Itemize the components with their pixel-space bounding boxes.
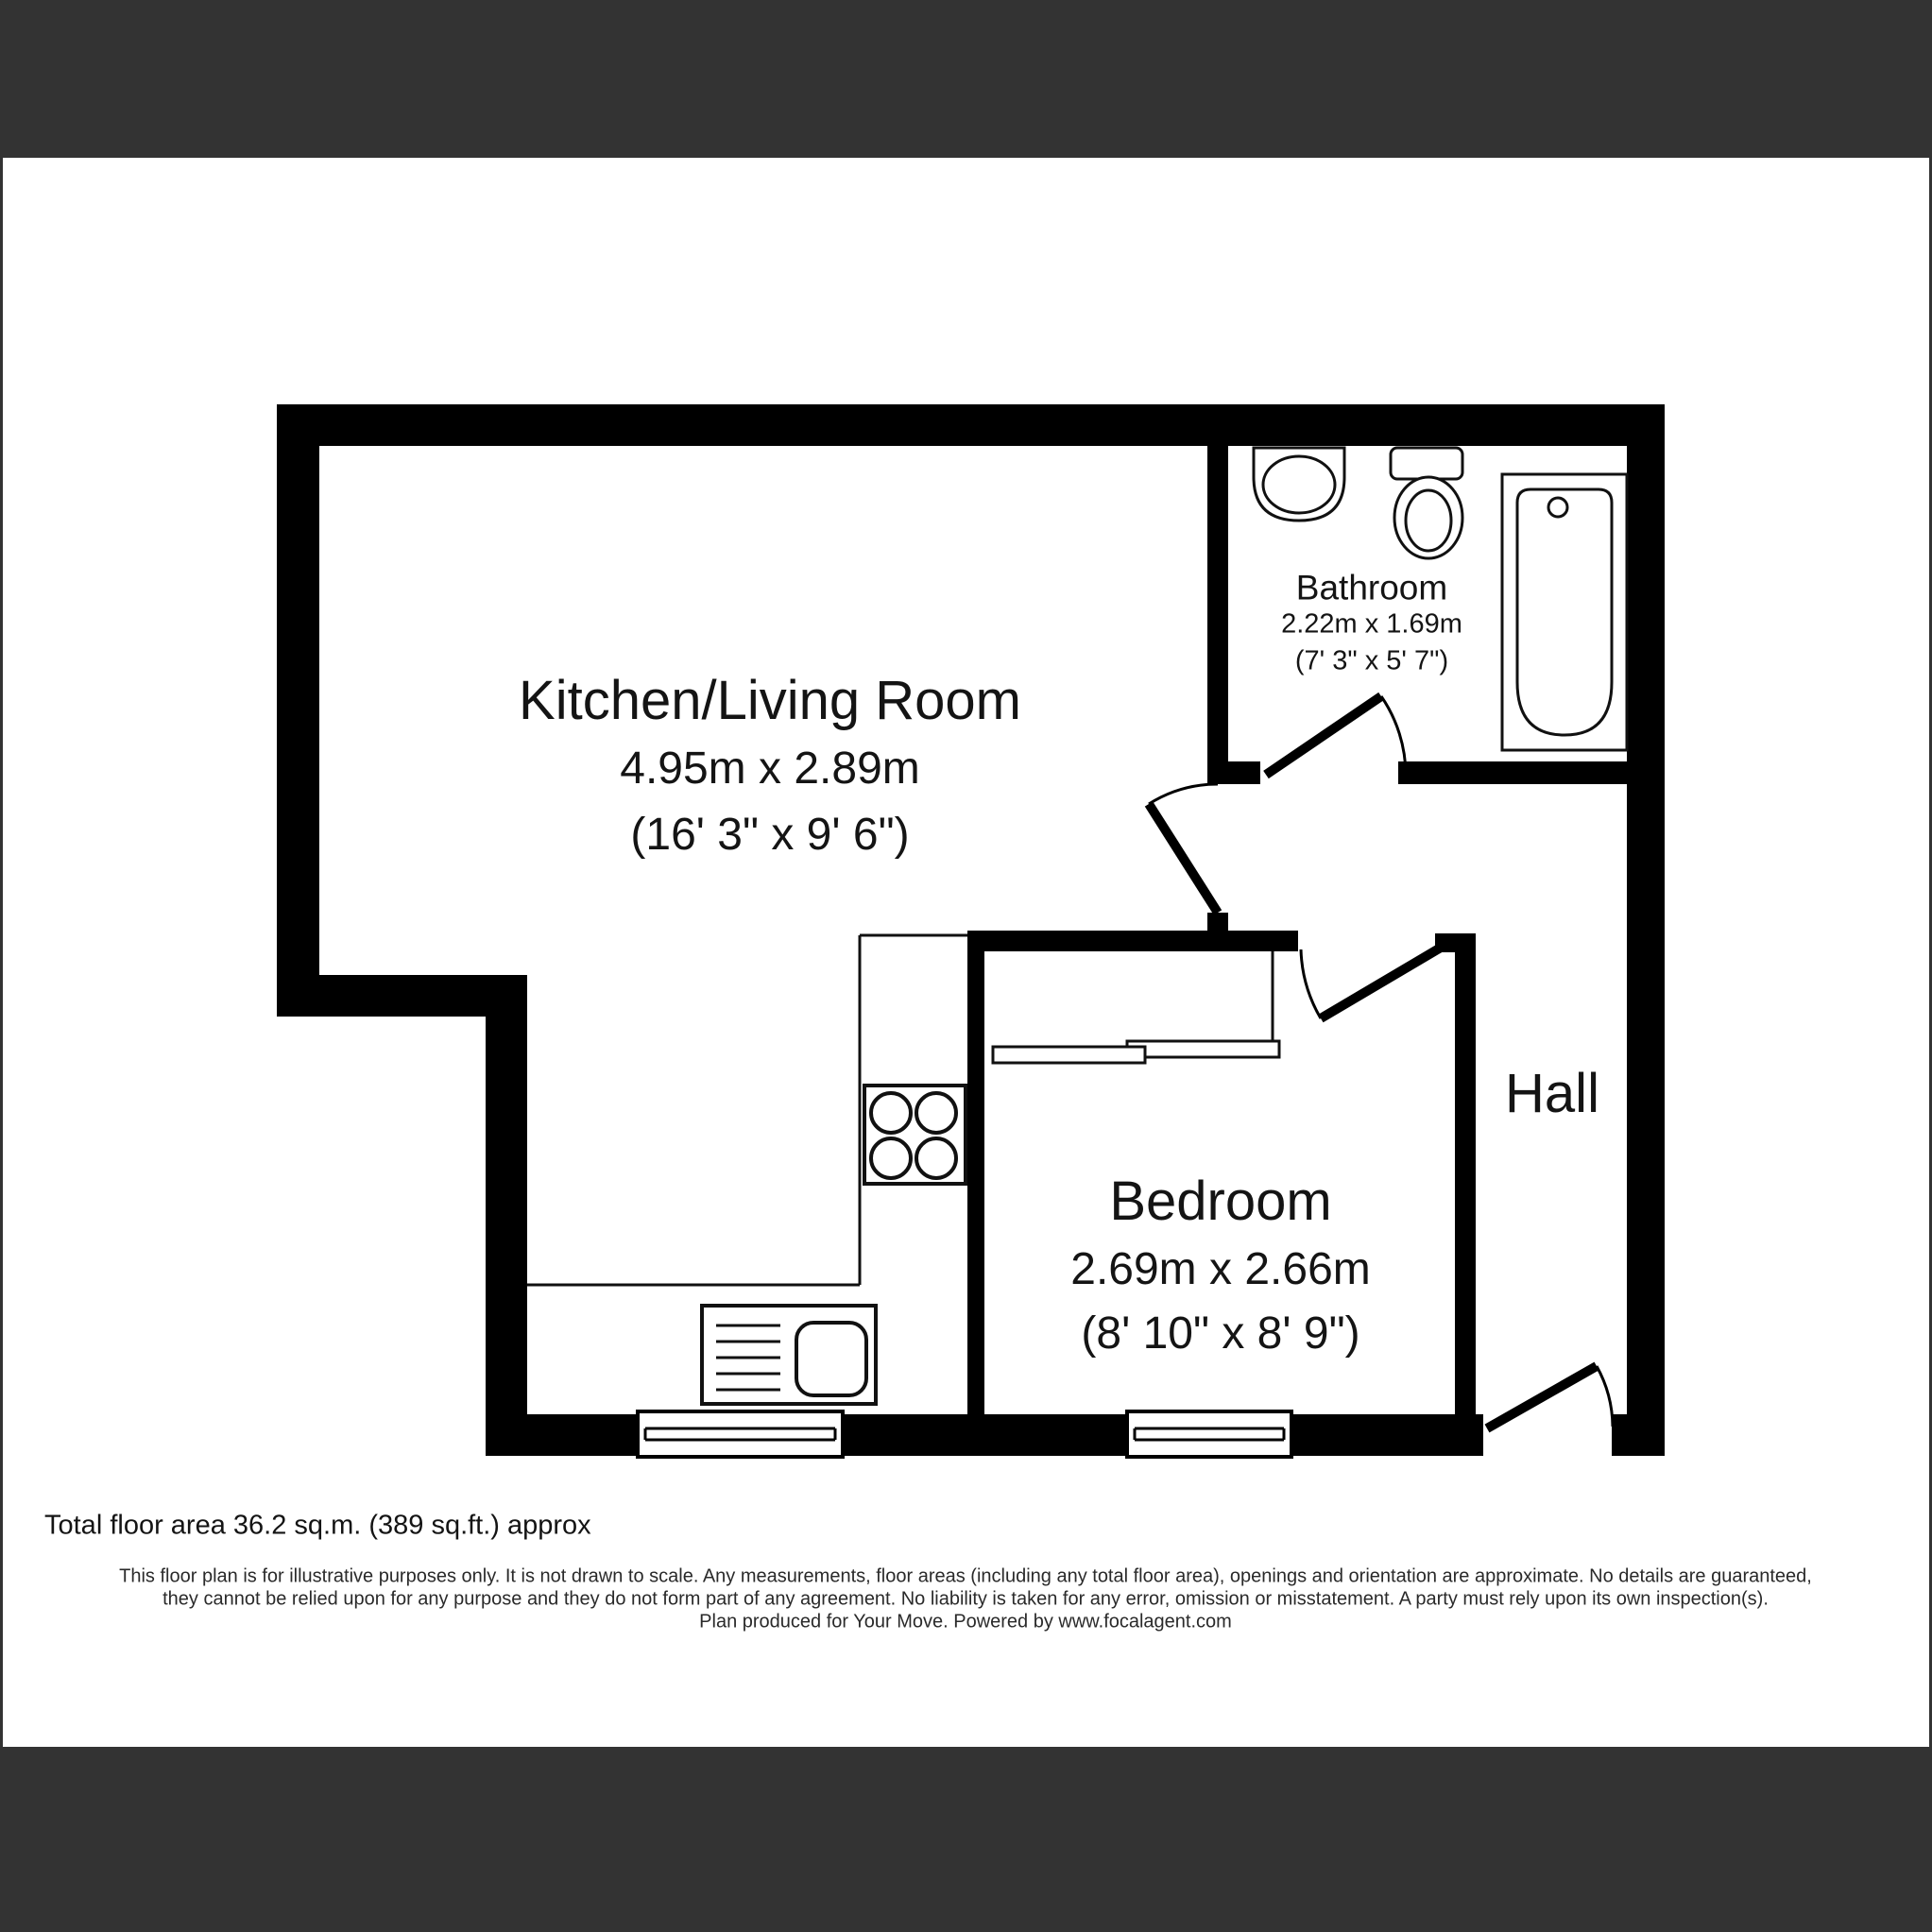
bedroom-door-icon xyxy=(1301,945,1445,1018)
total-floor-area-text: Total floor area 36.2 sq.m. (389 sq.ft.)… xyxy=(44,1511,591,1542)
disclaimer-line-1: This floor plan is for illustrative purp… xyxy=(119,1566,1812,1588)
walls xyxy=(277,404,1665,1456)
kitchen-window-icon xyxy=(638,1411,843,1457)
wall-left-upper xyxy=(277,404,319,1017)
disclaimer-line-3: Plan produced for Your Move. Powered by … xyxy=(699,1612,1232,1633)
wall-bath-bottom-right xyxy=(1398,761,1627,784)
hall-title: Hall xyxy=(1505,1067,1599,1121)
bedroom-title: Bedroom xyxy=(1109,1174,1331,1229)
kitchen-living-room-metric: 4.95m x 2.89m xyxy=(620,746,919,792)
kitchen-hall-door-icon xyxy=(1149,784,1218,913)
wall-bath-bottom-left-stub xyxy=(1207,761,1260,784)
wall-bottom-b xyxy=(843,1414,1127,1456)
bathroom-imperial: (7' 3" x 5' 7") xyxy=(1295,648,1448,675)
bathtub-icon xyxy=(1502,474,1627,750)
bathroom-title: Bathroom xyxy=(1296,571,1447,606)
bedroom-imperial: (8' 10" x 8' 9") xyxy=(1081,1311,1359,1357)
kitchen-living-room-title: Kitchen/Living Room xyxy=(519,674,1021,728)
wall-right xyxy=(1627,404,1665,1456)
kitchen-living-room-imperial: (16' 3" x 9' 6") xyxy=(630,812,909,858)
bedroom-metric: 2.69m x 2.66m xyxy=(1070,1247,1370,1292)
bedroom-window-icon xyxy=(1127,1411,1291,1457)
wall-bath-partition xyxy=(1207,404,1228,784)
wall-bottom-c xyxy=(1291,1414,1483,1456)
hob-icon xyxy=(864,1086,966,1184)
wall-bedroom-partition xyxy=(967,931,984,1414)
entry-door-icon xyxy=(1487,1366,1613,1428)
floorplan-screenshot: Kitchen/Living Room 4.95m x 2.89m (16' 3… xyxy=(0,0,1932,1932)
floorplan-drawing xyxy=(0,0,1932,1932)
disclaimer-line-2: they cannot be relied upon for any purpo… xyxy=(162,1589,1769,1611)
toilet-icon xyxy=(1391,448,1462,558)
wall-hall-left xyxy=(1455,933,1476,1414)
wardrobe-icon xyxy=(993,951,1279,1063)
kitchen-sink-icon xyxy=(702,1306,876,1404)
bathroom-door-icon xyxy=(1266,696,1406,775)
wall-top xyxy=(277,404,1665,446)
bathroom-metric: 2.22m x 1.69m xyxy=(1281,611,1462,639)
wall-bedroom-top xyxy=(967,931,1298,951)
wall-bottom-a xyxy=(486,1414,638,1456)
wall-left-lower xyxy=(486,975,527,1456)
basin-icon xyxy=(1254,448,1344,521)
